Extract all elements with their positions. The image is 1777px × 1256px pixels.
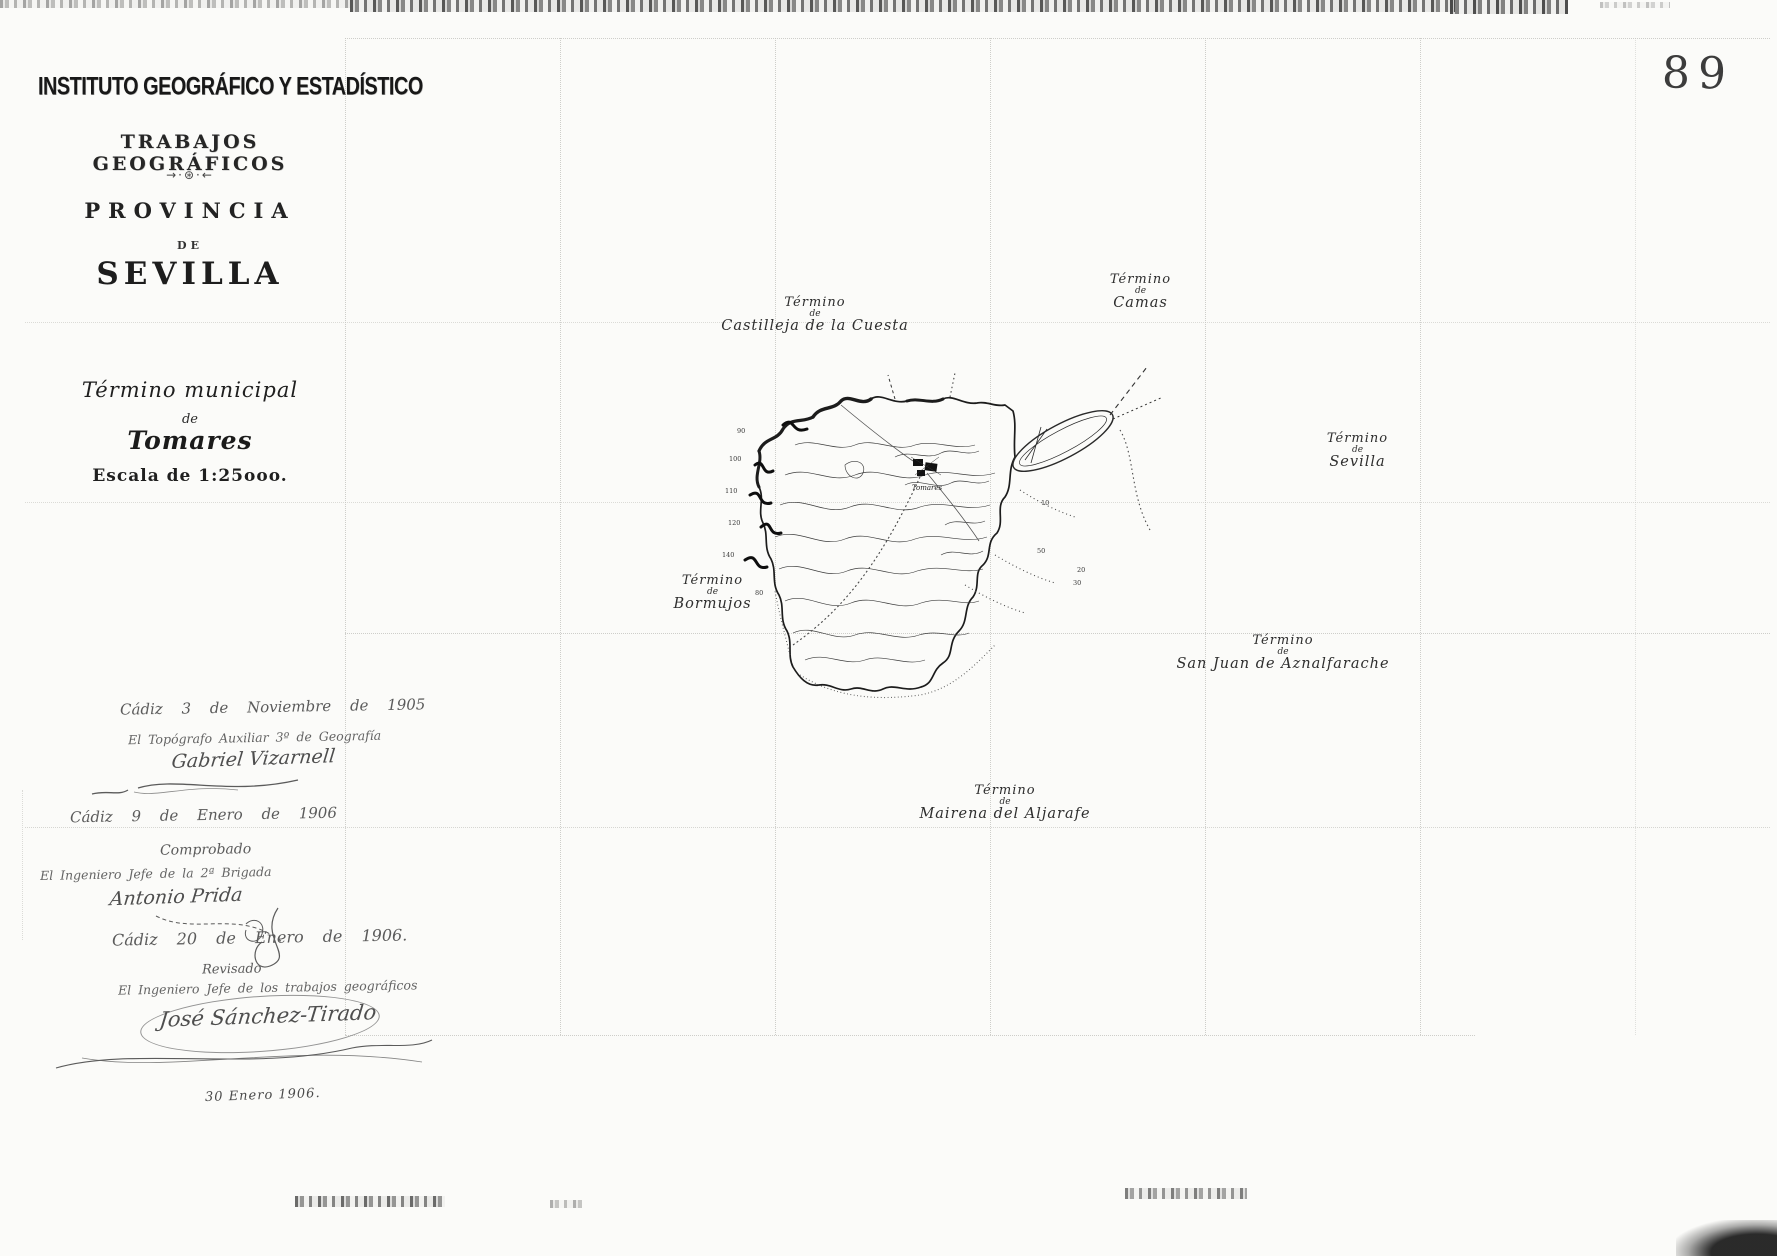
scan-noise-bottom-corner <box>1676 1220 1777 1256</box>
margin-note: 30 Enero 1906. <box>205 1086 321 1105</box>
scan-noise-top-left <box>0 0 350 8</box>
page-number: 89 <box>1662 47 1735 99</box>
contour-lines <box>775 443 995 662</box>
cert1-place-date: Cádiz 3 de Noviembre de 1905 <box>120 695 426 718</box>
divider-ornament-icon: →·⊛·← <box>120 168 260 182</box>
grid-hline <box>25 827 1770 828</box>
termino-line: Término <box>655 574 770 588</box>
cert2-role: El Ingeniero Jefe de la 2ª Brigada <box>40 864 272 883</box>
province-de: DE <box>80 239 300 252</box>
scan-noise-bottom-1 <box>295 1196 445 1207</box>
termino-line: Término <box>895 784 1115 798</box>
cert3-place-date: Cádiz 20 de Enero de 1906. <box>112 925 408 949</box>
town-label: Tomares <box>912 484 943 492</box>
cert2-status: Comprobado <box>160 841 251 859</box>
municipality-title-line1: Término municipal <box>60 378 320 402</box>
spot-elevation: 30 <box>1073 579 1081 587</box>
grid-vline <box>1420 38 1421 1035</box>
province-name: SEVILLA <box>70 256 310 292</box>
termino-line: Castilleja de la Cuesta <box>705 319 925 334</box>
label-termino-camas: Término de Camas <box>1088 273 1193 311</box>
municipality-name: Tomares <box>60 426 320 455</box>
cert3-status: Revisado <box>202 961 262 977</box>
cert1-signature-flourish <box>88 766 318 802</box>
spot-elevation: 20 <box>1077 566 1085 574</box>
label-termino-bormujos: Término de Bormujos <box>655 574 770 612</box>
spot-elevation: 120 <box>728 519 740 527</box>
dotted-textures <box>775 430 1150 698</box>
termino-line: Término <box>1310 432 1405 446</box>
termino-line: Término <box>1088 273 1193 287</box>
margin-vline <box>22 790 23 940</box>
spot-elevation: 10 <box>1041 499 1049 507</box>
northeast-dashes <box>888 367 1163 419</box>
cert1-role: El Topógrafo Auxiliar 3º de Geografía <box>128 728 381 747</box>
termino-line: Camas <box>1088 296 1193 311</box>
grid-vline <box>560 38 561 1035</box>
label-termino-san-juan: Término de San Juan de Aznalfarache <box>1168 634 1398 672</box>
spot-elevation: 110 <box>725 487 737 495</box>
termino-line: Término <box>705 296 925 310</box>
label-termino-mairena: Término de Mairena del Aljarafe <box>895 784 1115 822</box>
spot-elevation: 140 <box>722 551 734 559</box>
label-termino-sevilla: Término de Sevilla <box>1310 432 1405 470</box>
grid-vline <box>1205 38 1206 1035</box>
spot-elevation: 100 <box>729 455 741 463</box>
east-enclosure <box>1006 400 1121 483</box>
scan-noise-top-far-right <box>1600 2 1670 8</box>
scale-text: Escala de 1:25ooo. <box>60 466 320 486</box>
institution-stamp: INSTITUTO GEOGRÁFICO Y ESTADÍSTICO <box>38 72 423 101</box>
cert2-place-date: Cádiz 9 de Enero de 1906 <box>70 804 337 827</box>
scan-noise-top-right <box>1450 0 1568 14</box>
grid-vline <box>1635 38 1636 1035</box>
spot-elevation: 90 <box>737 427 745 435</box>
map-drawing: Tomares 100 110 120 140 90 80 50 30 20 1… <box>695 345 1175 775</box>
grid-vline <box>345 38 346 1035</box>
map-sheet: 89 INSTITUTO GEOGRÁFICO Y ESTADÍSTICO TR… <box>0 0 1777 1256</box>
termino-line: San Juan de Aznalfarache <box>1168 657 1398 672</box>
label-termino-castilleja: Término de Castilleja de la Cuesta <box>705 296 925 334</box>
spot-elevation: 50 <box>1037 547 1045 555</box>
cert3-signature-flourish <box>52 1028 437 1074</box>
termino-line: Sevilla <box>1310 455 1405 470</box>
province-label: PROVINCIA <box>80 198 300 223</box>
termino-line: Término <box>1168 634 1398 648</box>
termino-line: Bormujos <box>655 597 770 612</box>
termino-line: Mairena del Aljarafe <box>895 807 1115 822</box>
grid-hline <box>345 1035 1475 1036</box>
scan-noise-bottom-3 <box>1125 1188 1247 1199</box>
grid-hline <box>345 38 1770 39</box>
scan-noise-bottom-2 <box>550 1200 582 1208</box>
municipality-title-line2: de <box>60 412 320 427</box>
scan-noise-top-center <box>350 0 1455 12</box>
